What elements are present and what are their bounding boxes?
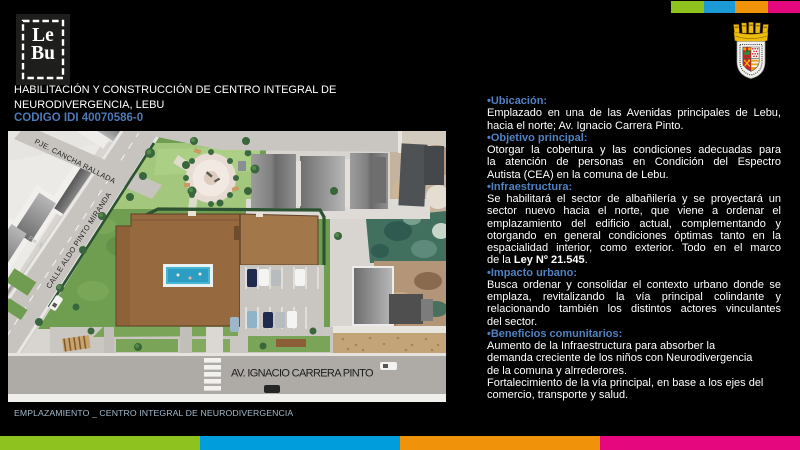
svg-text:AV. IGNACIO CARRERA PINTO: AV. IGNACIO CARRERA PINTO	[231, 368, 374, 380]
